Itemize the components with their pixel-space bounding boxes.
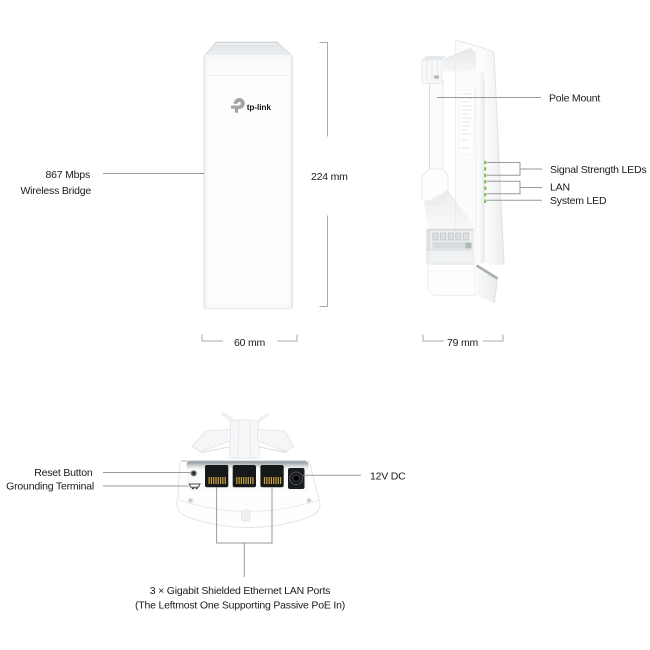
svg-text:12V DC: 12V DC <box>370 471 406 483</box>
svg-text:Pole Mount: Pole Mount <box>549 93 600 105</box>
svg-text:79 mm: 79 mm <box>447 337 479 349</box>
svg-text:867 Mbps: 867 Mbps <box>45 169 90 181</box>
svg-text:Signal Strength LEDs: Signal Strength LEDs <box>550 164 646 176</box>
svg-text:Reset Button: Reset Button <box>34 467 93 479</box>
svg-text:3 × Gigabit Shielded Ethernet: 3 × Gigabit Shielded Ethernet LAN Ports <box>150 585 330 597</box>
svg-text:LAN: LAN <box>550 182 570 194</box>
svg-text:60 mm: 60 mm <box>234 337 266 349</box>
svg-text:Grounding Terminal: Grounding Terminal <box>6 481 94 493</box>
svg-text:(The Leftmost One Supporting P: (The Leftmost One Supporting Passive PoE… <box>135 600 345 612</box>
svg-text:224 mm: 224 mm <box>311 171 348 183</box>
svg-text:Wireless Bridge: Wireless Bridge <box>20 185 91 197</box>
svg-text:tp-link: tp-link <box>247 102 272 112</box>
svg-text:System LED: System LED <box>550 195 607 207</box>
